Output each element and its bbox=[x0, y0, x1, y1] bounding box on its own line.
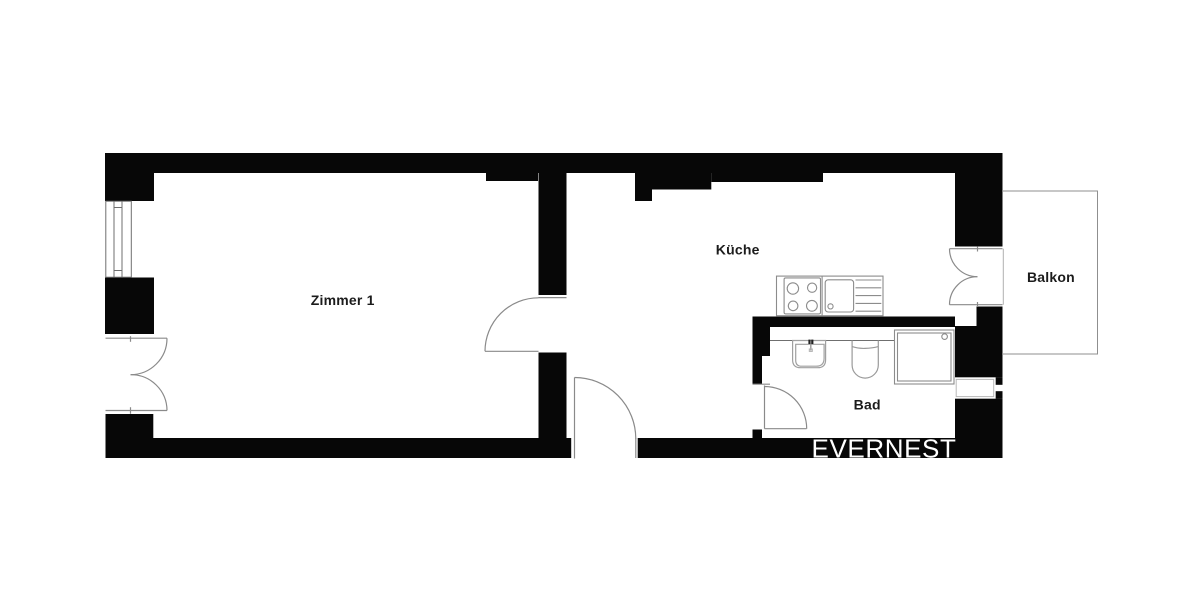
svg-text:Bad: Bad bbox=[854, 397, 881, 413]
svg-text:Küche: Küche bbox=[716, 242, 760, 258]
svg-text:Zimmer 1: Zimmer 1 bbox=[311, 292, 375, 308]
svg-text:Balkon: Balkon bbox=[1027, 269, 1075, 285]
svg-text:EVERNEST: EVERNEST bbox=[812, 433, 957, 463]
